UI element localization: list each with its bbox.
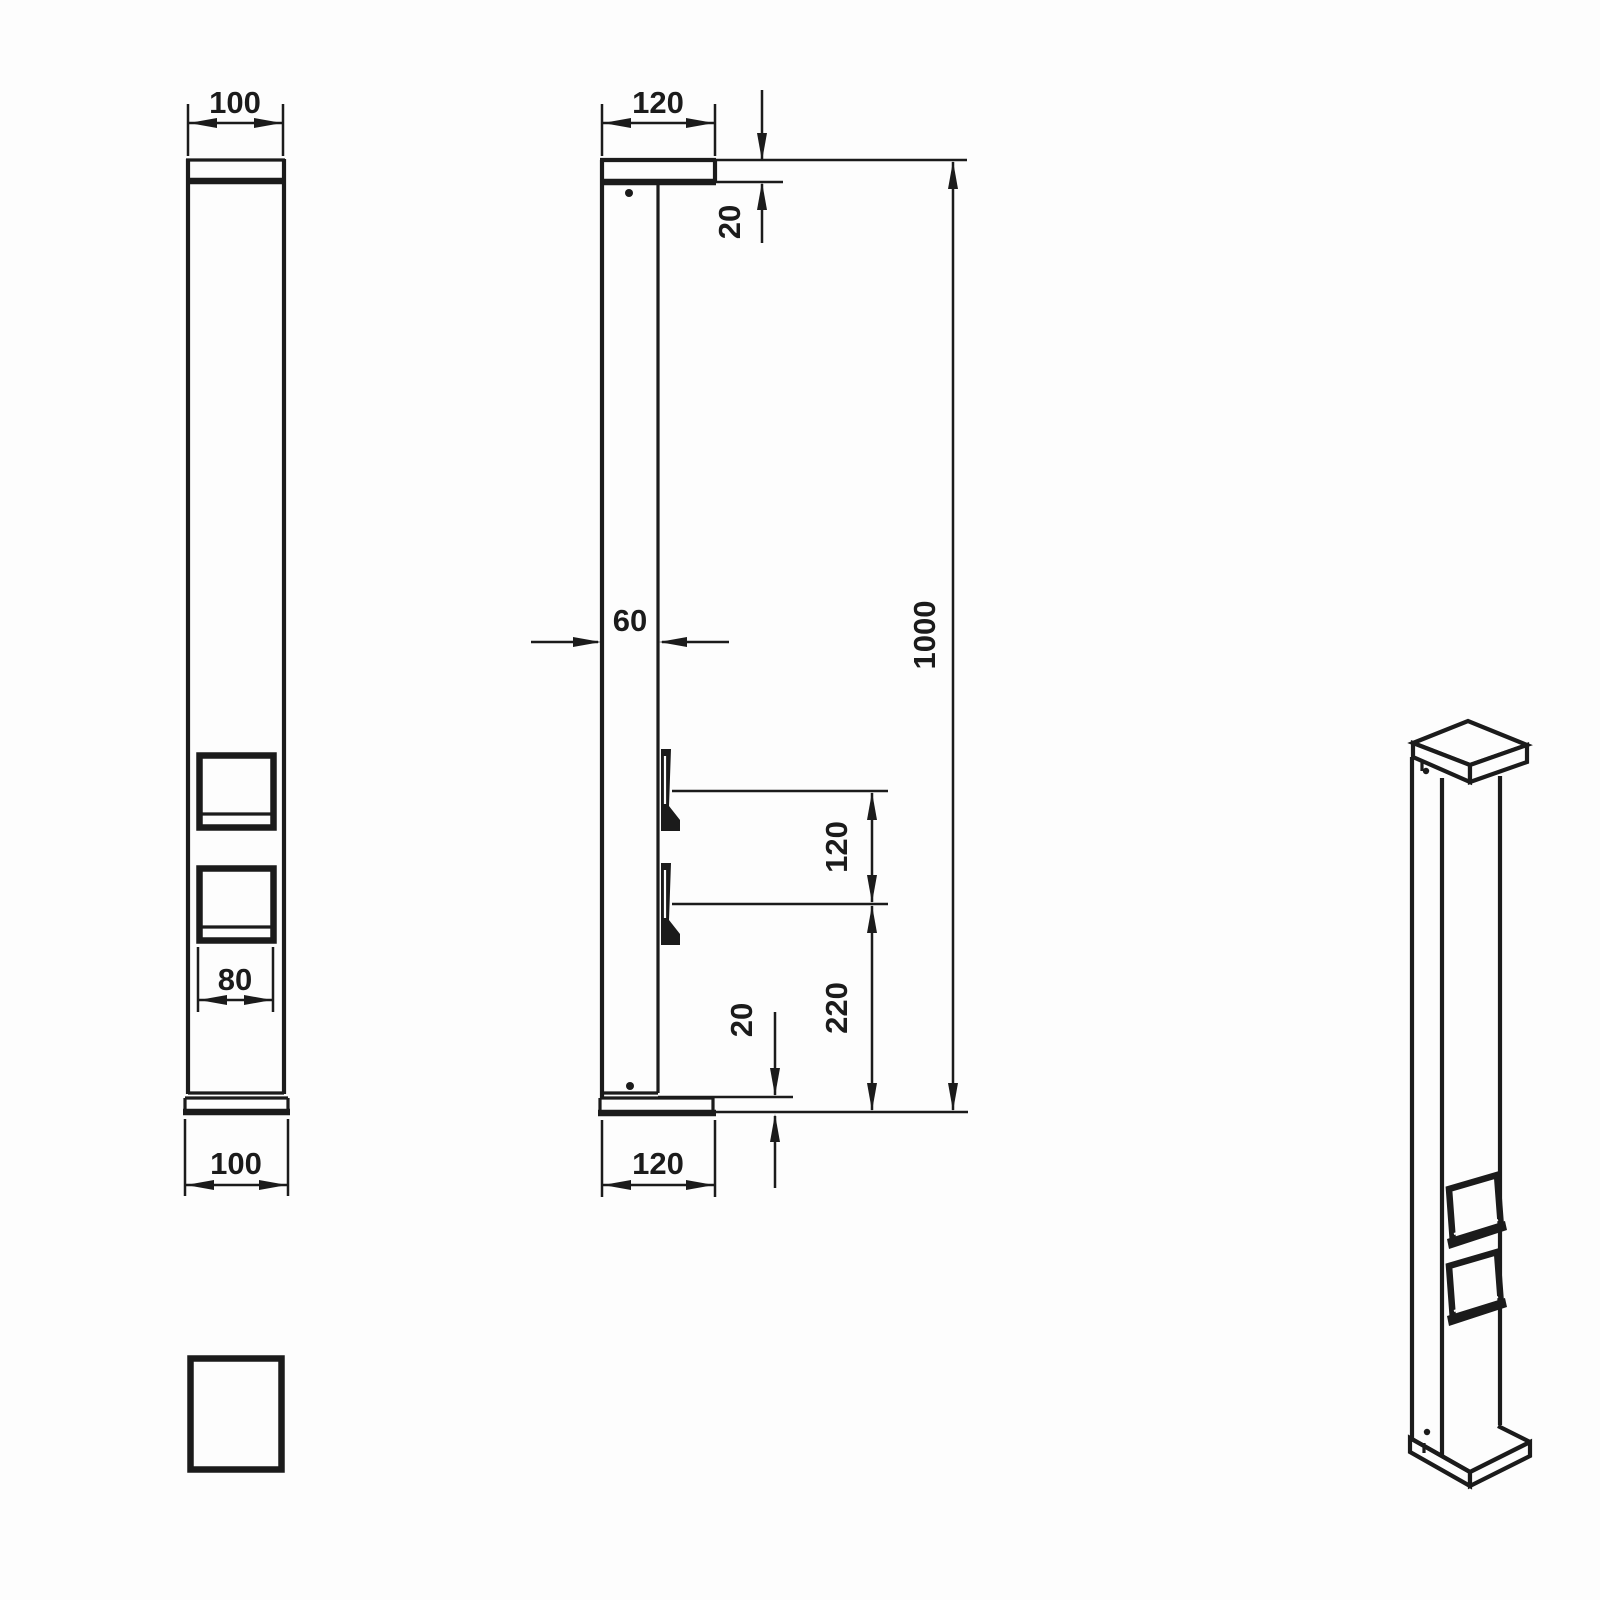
pole-drawing: 100 80 100 bbox=[0, 0, 1600, 1600]
dim-front-width-bottom: 100 bbox=[185, 1119, 288, 1196]
dim-side-depth-bottom: 120 bbox=[602, 1120, 715, 1197]
arrowhead-right bbox=[686, 118, 714, 128]
iso-column-edges bbox=[1412, 757, 1500, 1455]
dim-label-front-socket-width: 80 bbox=[218, 962, 252, 997]
arrowhead-down bbox=[948, 1083, 958, 1111]
arrowhead-up bbox=[867, 792, 877, 820]
dim-label-socket-spacing: 120 bbox=[819, 821, 854, 873]
arrowhead-left bbox=[603, 118, 631, 128]
arrowhead-right bbox=[686, 1180, 714, 1190]
front-view: 100 80 100 bbox=[183, 85, 290, 1196]
side-cap-top-edge bbox=[600, 160, 716, 182]
arrowhead-up bbox=[948, 161, 958, 189]
dim-label-front-width-top: 100 bbox=[209, 85, 261, 120]
dim-label-front-width-bottom: 100 bbox=[210, 1146, 262, 1181]
dim-front-width-top: 100 bbox=[188, 85, 283, 156]
side-view: 120 20 60 120 220 bbox=[531, 85, 968, 1197]
dim-label-socket-to-base: 220 bbox=[819, 982, 854, 1034]
arrowhead-down bbox=[770, 1068, 780, 1096]
dim-label-base-thickness: 20 bbox=[724, 1003, 759, 1037]
arrowhead-up bbox=[867, 905, 877, 933]
dim-label-body-depth: 60 bbox=[613, 603, 647, 638]
dim-lines bbox=[672, 791, 888, 904]
top-view bbox=[191, 1359, 282, 1470]
technical-drawing-sheet: 100 80 100 bbox=[0, 0, 1600, 1600]
front-socket-box-1 bbox=[200, 756, 274, 828]
front-body-sides bbox=[188, 159, 284, 1094]
dim-side-base-thickness: 20 bbox=[724, 1003, 780, 1188]
arrowhead-up bbox=[770, 1114, 780, 1142]
arrowhead-down bbox=[867, 1083, 877, 1111]
isometric-view bbox=[1410, 721, 1530, 1486]
screw-dot-top bbox=[625, 189, 633, 197]
dim-side-depth-top: 120 bbox=[602, 85, 715, 156]
iso-dot-top bbox=[1423, 768, 1429, 774]
arrowhead-right bbox=[259, 1180, 287, 1190]
dim-label-side-depth-top: 120 bbox=[632, 85, 684, 120]
dim-side-socket-spacing: 120 bbox=[672, 791, 888, 904]
arrowhead-down bbox=[867, 875, 877, 903]
top-view-outline bbox=[191, 1359, 282, 1470]
front-cap-top-edge bbox=[186, 160, 285, 1093]
arrowhead-right bbox=[573, 637, 601, 647]
dim-label-side-depth-bottom: 120 bbox=[632, 1146, 684, 1181]
dim-side-body-depth: 60 bbox=[531, 603, 729, 647]
arrowhead-left bbox=[659, 637, 687, 647]
front-socket-box-2 bbox=[200, 869, 274, 941]
dim-front-socket-width: 80 bbox=[198, 947, 273, 1012]
iso-dot-bottom bbox=[1424, 1429, 1430, 1435]
dim-label-cap-thickness: 20 bbox=[712, 205, 747, 239]
arrowhead-left bbox=[603, 1180, 631, 1190]
arrowhead-up bbox=[757, 182, 767, 210]
dim-side-overall-height: 1000 bbox=[907, 161, 958, 1111]
dim-side-cap-thickness: 20 bbox=[712, 90, 767, 243]
dim-label-overall-height: 1000 bbox=[907, 601, 942, 670]
arrowhead-left bbox=[186, 1180, 214, 1190]
side-body-back-edge bbox=[602, 183, 658, 1093]
dim-side-socket-to-base: 220 bbox=[819, 905, 877, 1111]
screw-dot-bottom bbox=[626, 1082, 634, 1090]
arrowhead-down bbox=[757, 133, 767, 161]
